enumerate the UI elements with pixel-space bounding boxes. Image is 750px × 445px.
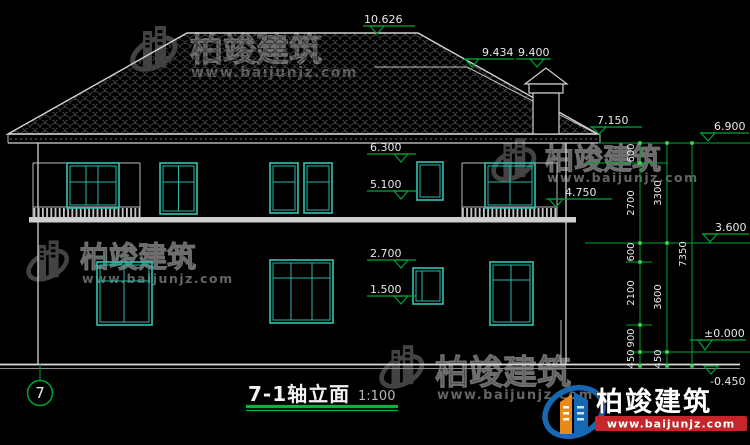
svg-text:6.900: 6.900	[714, 120, 746, 133]
door-f2-center-left	[270, 163, 298, 213]
window-f2-small	[417, 162, 443, 200]
window-f1-center	[270, 260, 333, 323]
svg-text:-0.450: -0.450	[710, 375, 745, 388]
svg-text:2.700: 2.700	[370, 247, 402, 260]
level-marker-f2-window-head: 6.300	[367, 141, 416, 162]
window-f2-left	[67, 163, 119, 208]
svg-text:600: 600	[626, 143, 637, 162]
level-marker-ridge: 10.626	[363, 13, 415, 34]
level-marker-chimney-top: 9.400	[516, 46, 551, 67]
level-marker-site-grade: -0.450	[704, 366, 745, 388]
svg-text:9.434: 9.434	[482, 46, 514, 59]
svg-text:3300: 3300	[653, 180, 664, 205]
watermark-url: www.baijunjz.com	[547, 170, 699, 185]
chimney-flue	[533, 93, 559, 134]
svg-text:4.750: 4.750	[565, 186, 597, 199]
watermark-brand: 柏竣建筑	[435, 353, 571, 393]
svg-text:1.500: 1.500	[370, 283, 402, 296]
svg-text:±0.000: ±0.000	[704, 327, 745, 340]
level-marker-ground-floor: ±0.000	[690, 327, 746, 350]
window-f1-right	[490, 262, 533, 325]
axis-number: 7	[35, 384, 45, 402]
svg-text:3600: 3600	[653, 284, 664, 309]
brand-logo: 柏竣建筑 www.baijunjz.com	[537, 379, 747, 445]
window-f1-small	[413, 268, 443, 304]
axis-bubble: 7	[28, 364, 53, 406]
chimney-cap	[525, 68, 567, 84]
svg-text:450: 450	[626, 349, 637, 368]
chimney-band	[529, 84, 563, 93]
svg-text:5.100: 5.100	[370, 178, 402, 191]
svg-text:6.300: 6.300	[370, 141, 402, 154]
svg-text:7350: 7350	[678, 241, 689, 266]
svg-text:2700: 2700	[626, 190, 637, 215]
svg-text:10.626: 10.626	[364, 13, 403, 26]
cad-elevation-screenshot: 柏竣建筑 www.baijunjz.com 柏竣建筑 www.baijunjz.…	[0, 0, 750, 445]
balcony-right-railing	[462, 208, 557, 218]
level-marker-f1-window-sill: 1.500	[367, 283, 416, 304]
watermark-url: www.baijunjz.com	[82, 271, 234, 286]
elevation-drawing: 柏竣建筑 www.baijunjz.com 柏竣建筑 www.baijunjz.…	[0, 0, 750, 445]
logo-brand-text: 柏竣建筑	[596, 386, 712, 418]
svg-text:3.600: 3.600	[715, 221, 747, 234]
watermark-left: 柏竣建筑 www.baijunjz.com	[24, 240, 234, 286]
logo-url-text: www.baijunjz.com	[607, 418, 735, 431]
level-marker-right-eave: 6.900	[700, 120, 749, 141]
drawing-title: 7-1轴立面 1:100	[246, 382, 398, 411]
svg-text:600: 600	[626, 242, 637, 261]
door-f2-left	[160, 163, 197, 214]
scale-label: 1:100	[358, 389, 395, 404]
title-text: 7-1轴立面	[248, 382, 350, 406]
level-marker-f2-window-sill: 5.100	[367, 178, 416, 199]
balcony-left-railing	[33, 208, 140, 218]
level-marker-second-floor: 3.600	[702, 221, 749, 242]
level-marker-f1-window-head: 2.700	[367, 247, 416, 268]
level-marker-balcony-railing: 4.750	[546, 186, 612, 207]
svg-text:9.400: 9.400	[518, 46, 550, 59]
svg-text:900: 900	[626, 328, 637, 347]
svg-text:450: 450	[653, 349, 664, 368]
level-marker-main-eave: 7.150	[590, 114, 642, 134]
door-f2-center-right	[304, 163, 332, 213]
svg-text:2100: 2100	[626, 280, 637, 305]
svg-text:7.150: 7.150	[597, 114, 629, 127]
